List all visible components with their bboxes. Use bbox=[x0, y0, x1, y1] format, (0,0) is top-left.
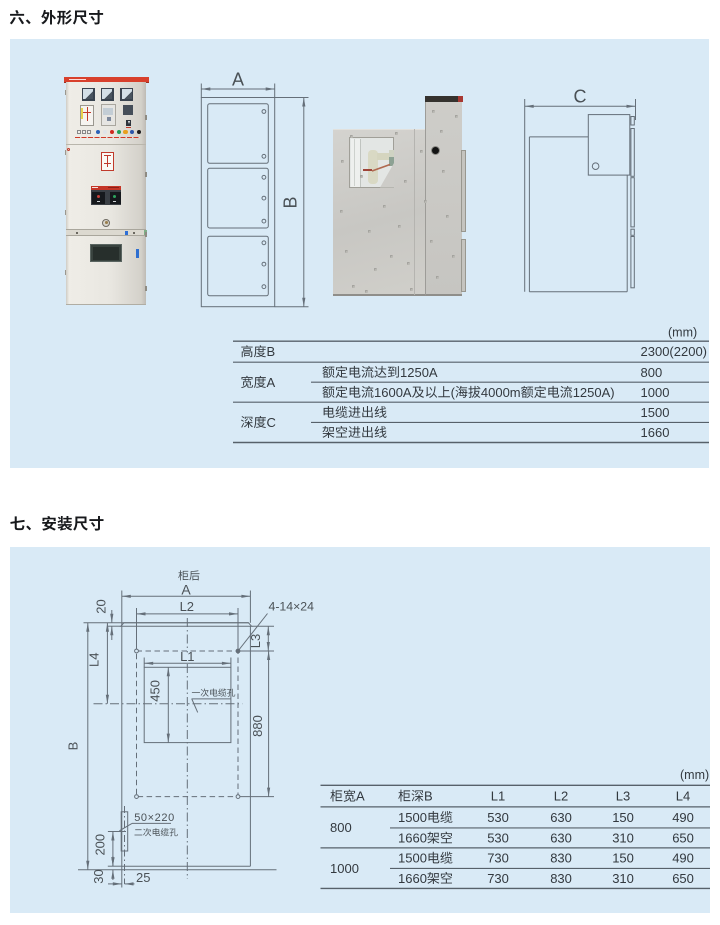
svg-text:150: 150 bbox=[612, 851, 634, 866]
svg-text:1500: 1500 bbox=[398, 810, 427, 825]
svg-text:B: B bbox=[424, 789, 433, 804]
svg-text:650: 650 bbox=[672, 831, 694, 846]
svg-text:(mm): (mm) bbox=[668, 326, 697, 340]
svg-text:25: 25 bbox=[136, 870, 150, 885]
svg-text:1660: 1660 bbox=[398, 831, 427, 846]
svg-text:150: 150 bbox=[612, 810, 634, 825]
svg-text:4000m: 4000m bbox=[481, 385, 521, 400]
svg-text:L1: L1 bbox=[180, 649, 194, 664]
svg-text:1500: 1500 bbox=[398, 851, 427, 866]
svg-text:2300(2200): 2300(2200) bbox=[641, 344, 708, 359]
svg-text:630: 630 bbox=[550, 810, 572, 825]
svg-text:530: 530 bbox=[487, 831, 509, 846]
svg-text:730: 730 bbox=[487, 851, 509, 866]
svg-text:B: B bbox=[280, 196, 300, 208]
svg-text:1000: 1000 bbox=[330, 861, 359, 876]
svg-text:830: 830 bbox=[550, 851, 572, 866]
svg-text:A: A bbox=[356, 789, 365, 804]
svg-text:1500: 1500 bbox=[641, 405, 670, 420]
svg-text:L4: L4 bbox=[676, 789, 690, 804]
svg-text:L1: L1 bbox=[491, 789, 505, 804]
svg-text:800: 800 bbox=[330, 820, 352, 835]
svg-text:530: 530 bbox=[487, 810, 509, 825]
svg-text:1250A): 1250A) bbox=[573, 385, 615, 400]
svg-text:650: 650 bbox=[672, 871, 694, 886]
svg-text:630: 630 bbox=[550, 831, 572, 846]
svg-text:1250A: 1250A bbox=[400, 365, 438, 380]
svg-text:B: B bbox=[66, 742, 81, 751]
svg-text:490: 490 bbox=[672, 851, 694, 866]
svg-text:1600A: 1600A bbox=[374, 385, 412, 400]
svg-text:1660: 1660 bbox=[641, 425, 670, 440]
svg-text:A: A bbox=[267, 375, 276, 390]
svg-text:(: ( bbox=[451, 385, 456, 400]
svg-text:310: 310 bbox=[612, 831, 634, 846]
svg-text:880: 880 bbox=[250, 715, 265, 737]
svg-text:50×220: 50×220 bbox=[134, 812, 175, 824]
svg-text:200: 200 bbox=[93, 834, 108, 856]
svg-text:A: A bbox=[181, 582, 191, 598]
svg-text:830: 830 bbox=[550, 871, 572, 886]
svg-text:A: A bbox=[232, 70, 244, 90]
svg-text:730: 730 bbox=[487, 871, 509, 886]
svg-text:450: 450 bbox=[148, 680, 163, 702]
svg-text:4-14×24: 4-14×24 bbox=[269, 600, 315, 614]
svg-text:1660: 1660 bbox=[398, 871, 427, 886]
svg-text:1000: 1000 bbox=[641, 385, 670, 400]
svg-text:800: 800 bbox=[641, 365, 663, 380]
svg-text:30: 30 bbox=[91, 869, 106, 883]
svg-text:L2: L2 bbox=[554, 789, 568, 804]
svg-text:C: C bbox=[267, 415, 276, 430]
svg-text:L2: L2 bbox=[180, 599, 194, 614]
svg-text:490: 490 bbox=[672, 810, 694, 825]
svg-text:C: C bbox=[574, 87, 587, 107]
svg-text:310: 310 bbox=[612, 871, 634, 886]
svg-text:L4: L4 bbox=[87, 653, 102, 667]
svg-text:(mm): (mm) bbox=[680, 768, 709, 782]
svg-text:L3: L3 bbox=[616, 789, 630, 804]
svg-text:20: 20 bbox=[94, 599, 109, 613]
svg-text:B: B bbox=[267, 344, 276, 359]
